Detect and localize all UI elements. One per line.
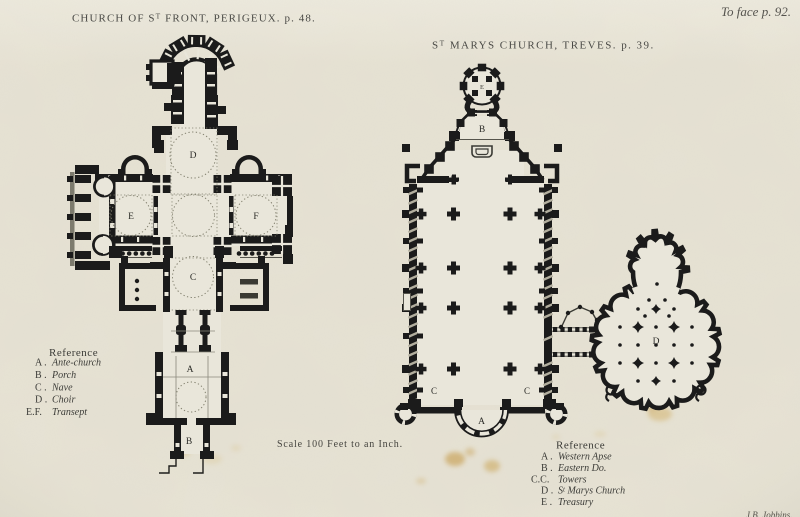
svg-text:C .: C . — [35, 382, 47, 393]
svg-text:Porch: Porch — [51, 370, 76, 381]
svg-text:C.C.: C.C. — [531, 474, 549, 485]
svg-text:A .: A . — [35, 358, 47, 369]
svg-text:A: A — [478, 417, 485, 427]
svg-text:F: F — [253, 212, 258, 222]
svg-text:B: B — [479, 125, 485, 135]
svg-text:Choir: Choir — [52, 395, 75, 406]
svg-text:E: E — [480, 84, 484, 91]
svg-text:A .: A . — [541, 452, 553, 463]
svg-text:To face p. 92.: To face p. 92. — [721, 4, 791, 19]
svg-text:B .: B . — [35, 370, 47, 381]
svg-text:C: C — [190, 273, 196, 283]
svg-text:Ante-church: Ante-church — [51, 358, 101, 369]
svg-text:D .: D . — [541, 486, 553, 497]
svg-text:B .: B . — [541, 463, 553, 474]
svg-text:C: C — [431, 386, 437, 396]
svg-text:E .: E . — [541, 497, 552, 508]
svg-text:Reference: Reference — [556, 440, 605, 452]
svg-text:Treasury: Treasury — [558, 497, 594, 508]
svg-text:C: C — [524, 386, 530, 396]
svg-text:E.F.: E.F. — [26, 407, 42, 418]
svg-text:D: D — [653, 337, 660, 347]
svg-text:B: B — [186, 437, 192, 447]
svg-text:St Marys Church: St Marys Church — [558, 486, 625, 497]
svg-text:Scale 100 Feet to an Inch.: Scale 100 Feet to an Inch. — [277, 439, 403, 450]
svg-text:E: E — [128, 212, 134, 222]
svg-text:J.B. Jobbins.: J.B. Jobbins. — [746, 510, 793, 517]
svg-text:A: A — [187, 365, 194, 375]
svg-text:D: D — [190, 151, 197, 161]
svg-text:D .: D . — [35, 395, 47, 406]
svg-text:Nave: Nave — [51, 382, 73, 393]
svg-text:Eastern Do.: Eastern Do. — [557, 463, 606, 474]
svg-text:Towers: Towers — [558, 474, 587, 485]
svg-text:Transept: Transept — [52, 407, 87, 418]
svg-text:CHURCH OF ST FRONT, PERIGEUX.: CHURCH OF ST FRONT, PERIGEUX. p. 48. — [72, 12, 316, 25]
svg-text:Western Apse: Western Apse — [558, 452, 612, 463]
svg-text:ST MARYS CHURCH, TREVES. p. 39: ST MARYS CHURCH, TREVES. p. 39. — [432, 39, 655, 52]
